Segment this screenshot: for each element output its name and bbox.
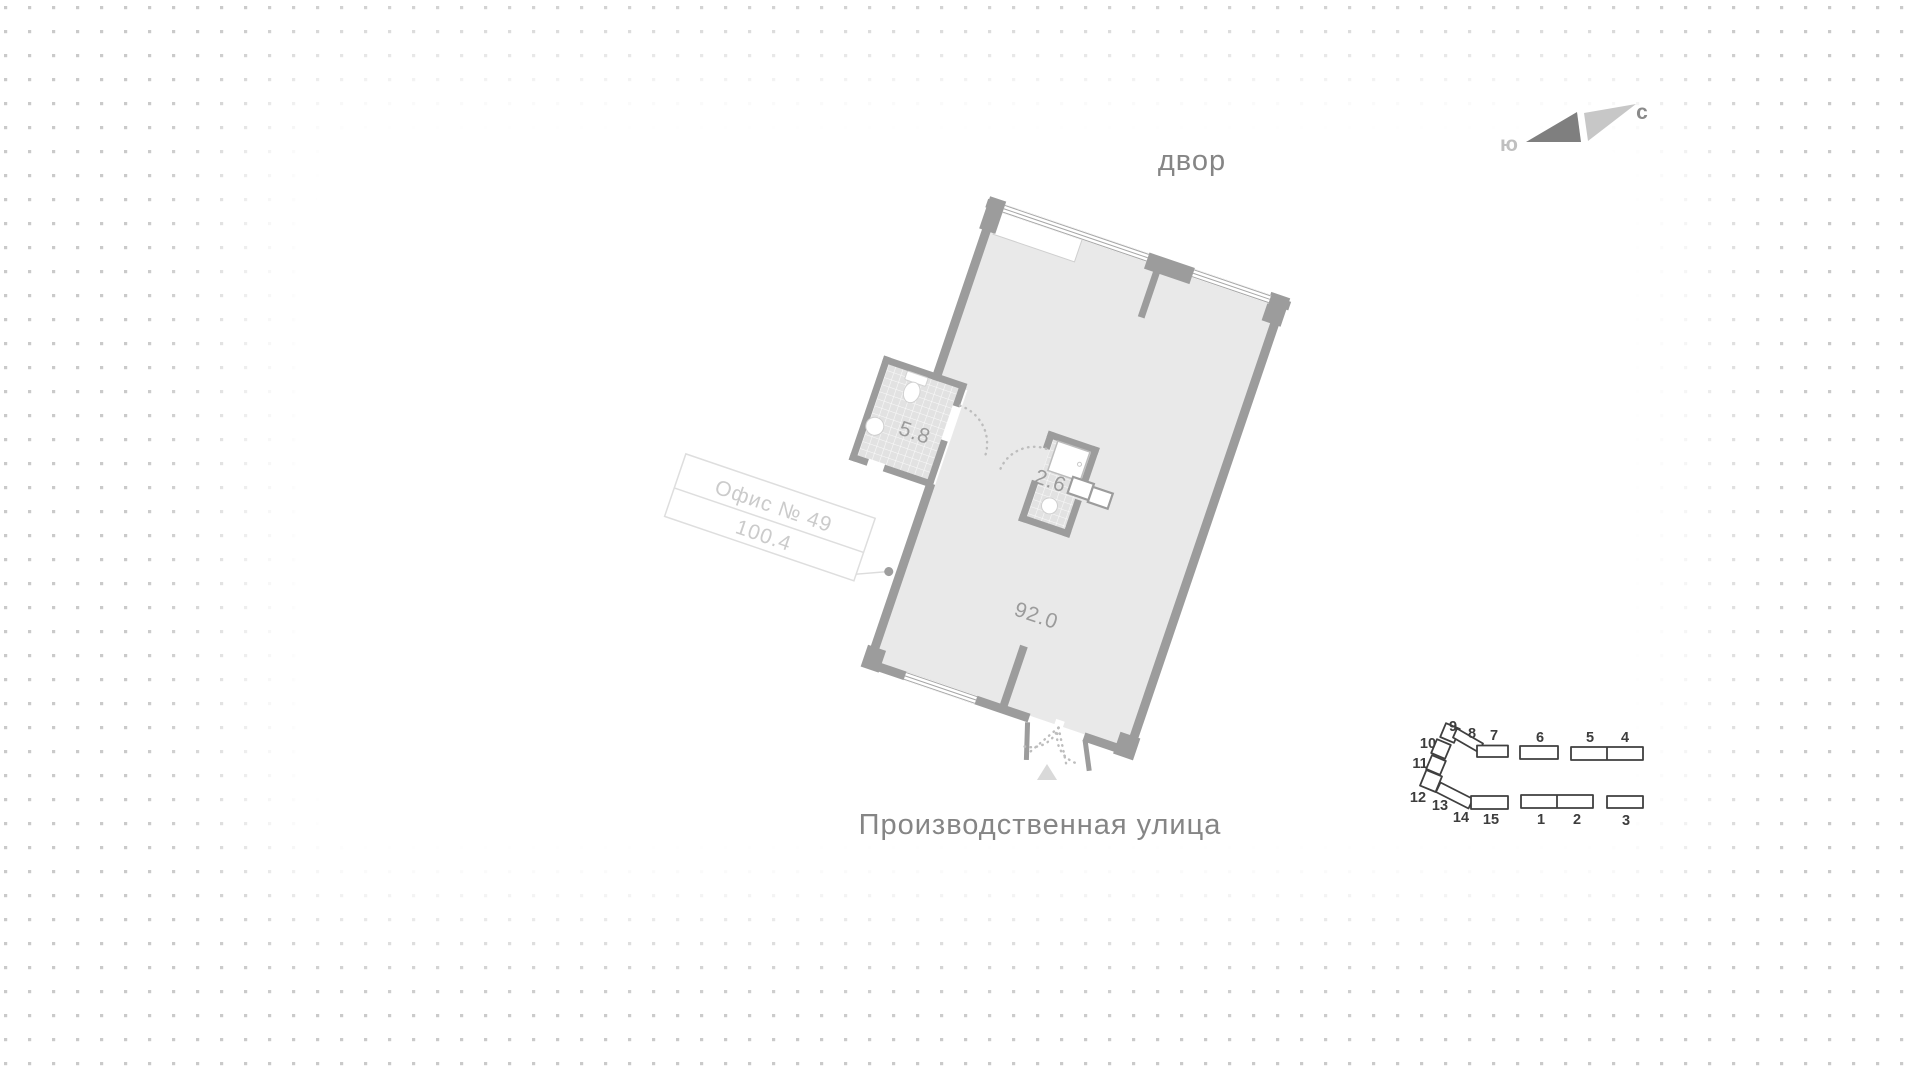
entrance-door-leaf-right bbox=[1048, 728, 1076, 764]
building-number-13: 13 bbox=[1432, 798, 1448, 814]
office-card: Офис № 49 100.4 bbox=[665, 454, 908, 592]
compass-needle-south bbox=[1526, 112, 1581, 142]
office-card-box bbox=[665, 454, 876, 581]
building-15 bbox=[1471, 796, 1508, 809]
building-number-1: 1 bbox=[1537, 812, 1545, 828]
compass: ю с bbox=[1500, 101, 1648, 156]
building-number-9: 9 bbox=[1449, 719, 1457, 735]
building-number-11: 11 bbox=[1412, 756, 1427, 772]
building-number-5: 5 bbox=[1586, 730, 1594, 746]
building-number-7: 7 bbox=[1490, 728, 1498, 744]
building-number-14: 14 bbox=[1453, 810, 1469, 826]
building-number-15: 15 bbox=[1483, 812, 1499, 828]
building-number-12: 12 bbox=[1410, 790, 1426, 806]
compass-south-label: ю bbox=[1500, 133, 1518, 156]
building-6 bbox=[1520, 746, 1558, 759]
building-number-3: 3 bbox=[1622, 813, 1630, 829]
entrance-door-leaf-left bbox=[1030, 721, 1058, 757]
compass-needle-north bbox=[1584, 104, 1636, 141]
street-label: Производственная улица bbox=[859, 809, 1222, 841]
leader-dot bbox=[883, 566, 894, 577]
floor-plan: 5.8 2.6 bbox=[628, 130, 1292, 793]
leader-line bbox=[856, 562, 889, 584]
site-map: 9 8 7 6 5 4 10 11 12 13 14 15 1 2 3 bbox=[1410, 719, 1643, 829]
building-number-8: 8 bbox=[1468, 726, 1476, 742]
building-number-10: 10 bbox=[1420, 736, 1436, 752]
building-number-6: 6 bbox=[1536, 730, 1544, 746]
scene: 5.8 2.6 bbox=[0, 0, 1920, 1078]
yard-label: двор bbox=[1158, 145, 1226, 177]
building-3 bbox=[1607, 796, 1643, 808]
building-number-2: 2 bbox=[1573, 812, 1581, 828]
entrance-arrow-icon bbox=[1037, 764, 1057, 780]
porch-wall-left bbox=[1016, 722, 1038, 760]
building-number-4: 4 bbox=[1621, 730, 1629, 746]
floor-plan-page: 5.8 2.6 bbox=[0, 0, 1920, 1078]
compass-north-label: с bbox=[1636, 101, 1648, 124]
building-7 bbox=[1477, 746, 1508, 758]
